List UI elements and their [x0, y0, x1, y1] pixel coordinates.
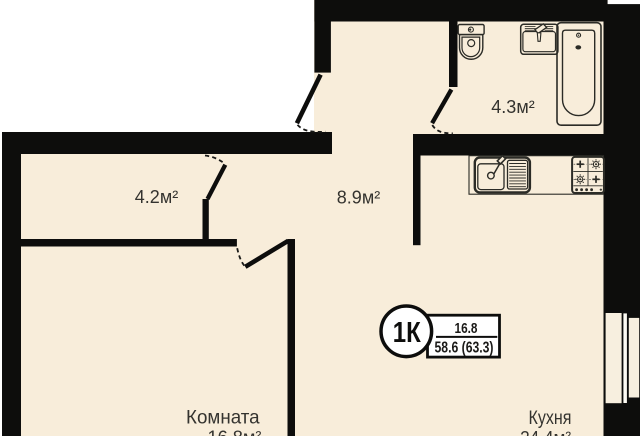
svg-text:16.8м²: 16.8м² — [208, 428, 262, 436]
svg-text:Комната: Комната — [186, 406, 260, 428]
svg-text:4.2м²: 4.2м² — [135, 187, 178, 207]
svg-text:16.8: 16.8 — [455, 321, 478, 337]
svg-text:1К: 1К — [393, 317, 421, 349]
svg-text:8.9м²: 8.9м² — [337, 188, 380, 208]
svg-text:58.6 (63.3): 58.6 (63.3) — [435, 340, 494, 357]
svg-text:24.4м²: 24.4м² — [520, 428, 571, 436]
svg-text:4.3м²: 4.3м² — [491, 97, 534, 117]
svg-text:Кухня: Кухня — [529, 407, 572, 429]
